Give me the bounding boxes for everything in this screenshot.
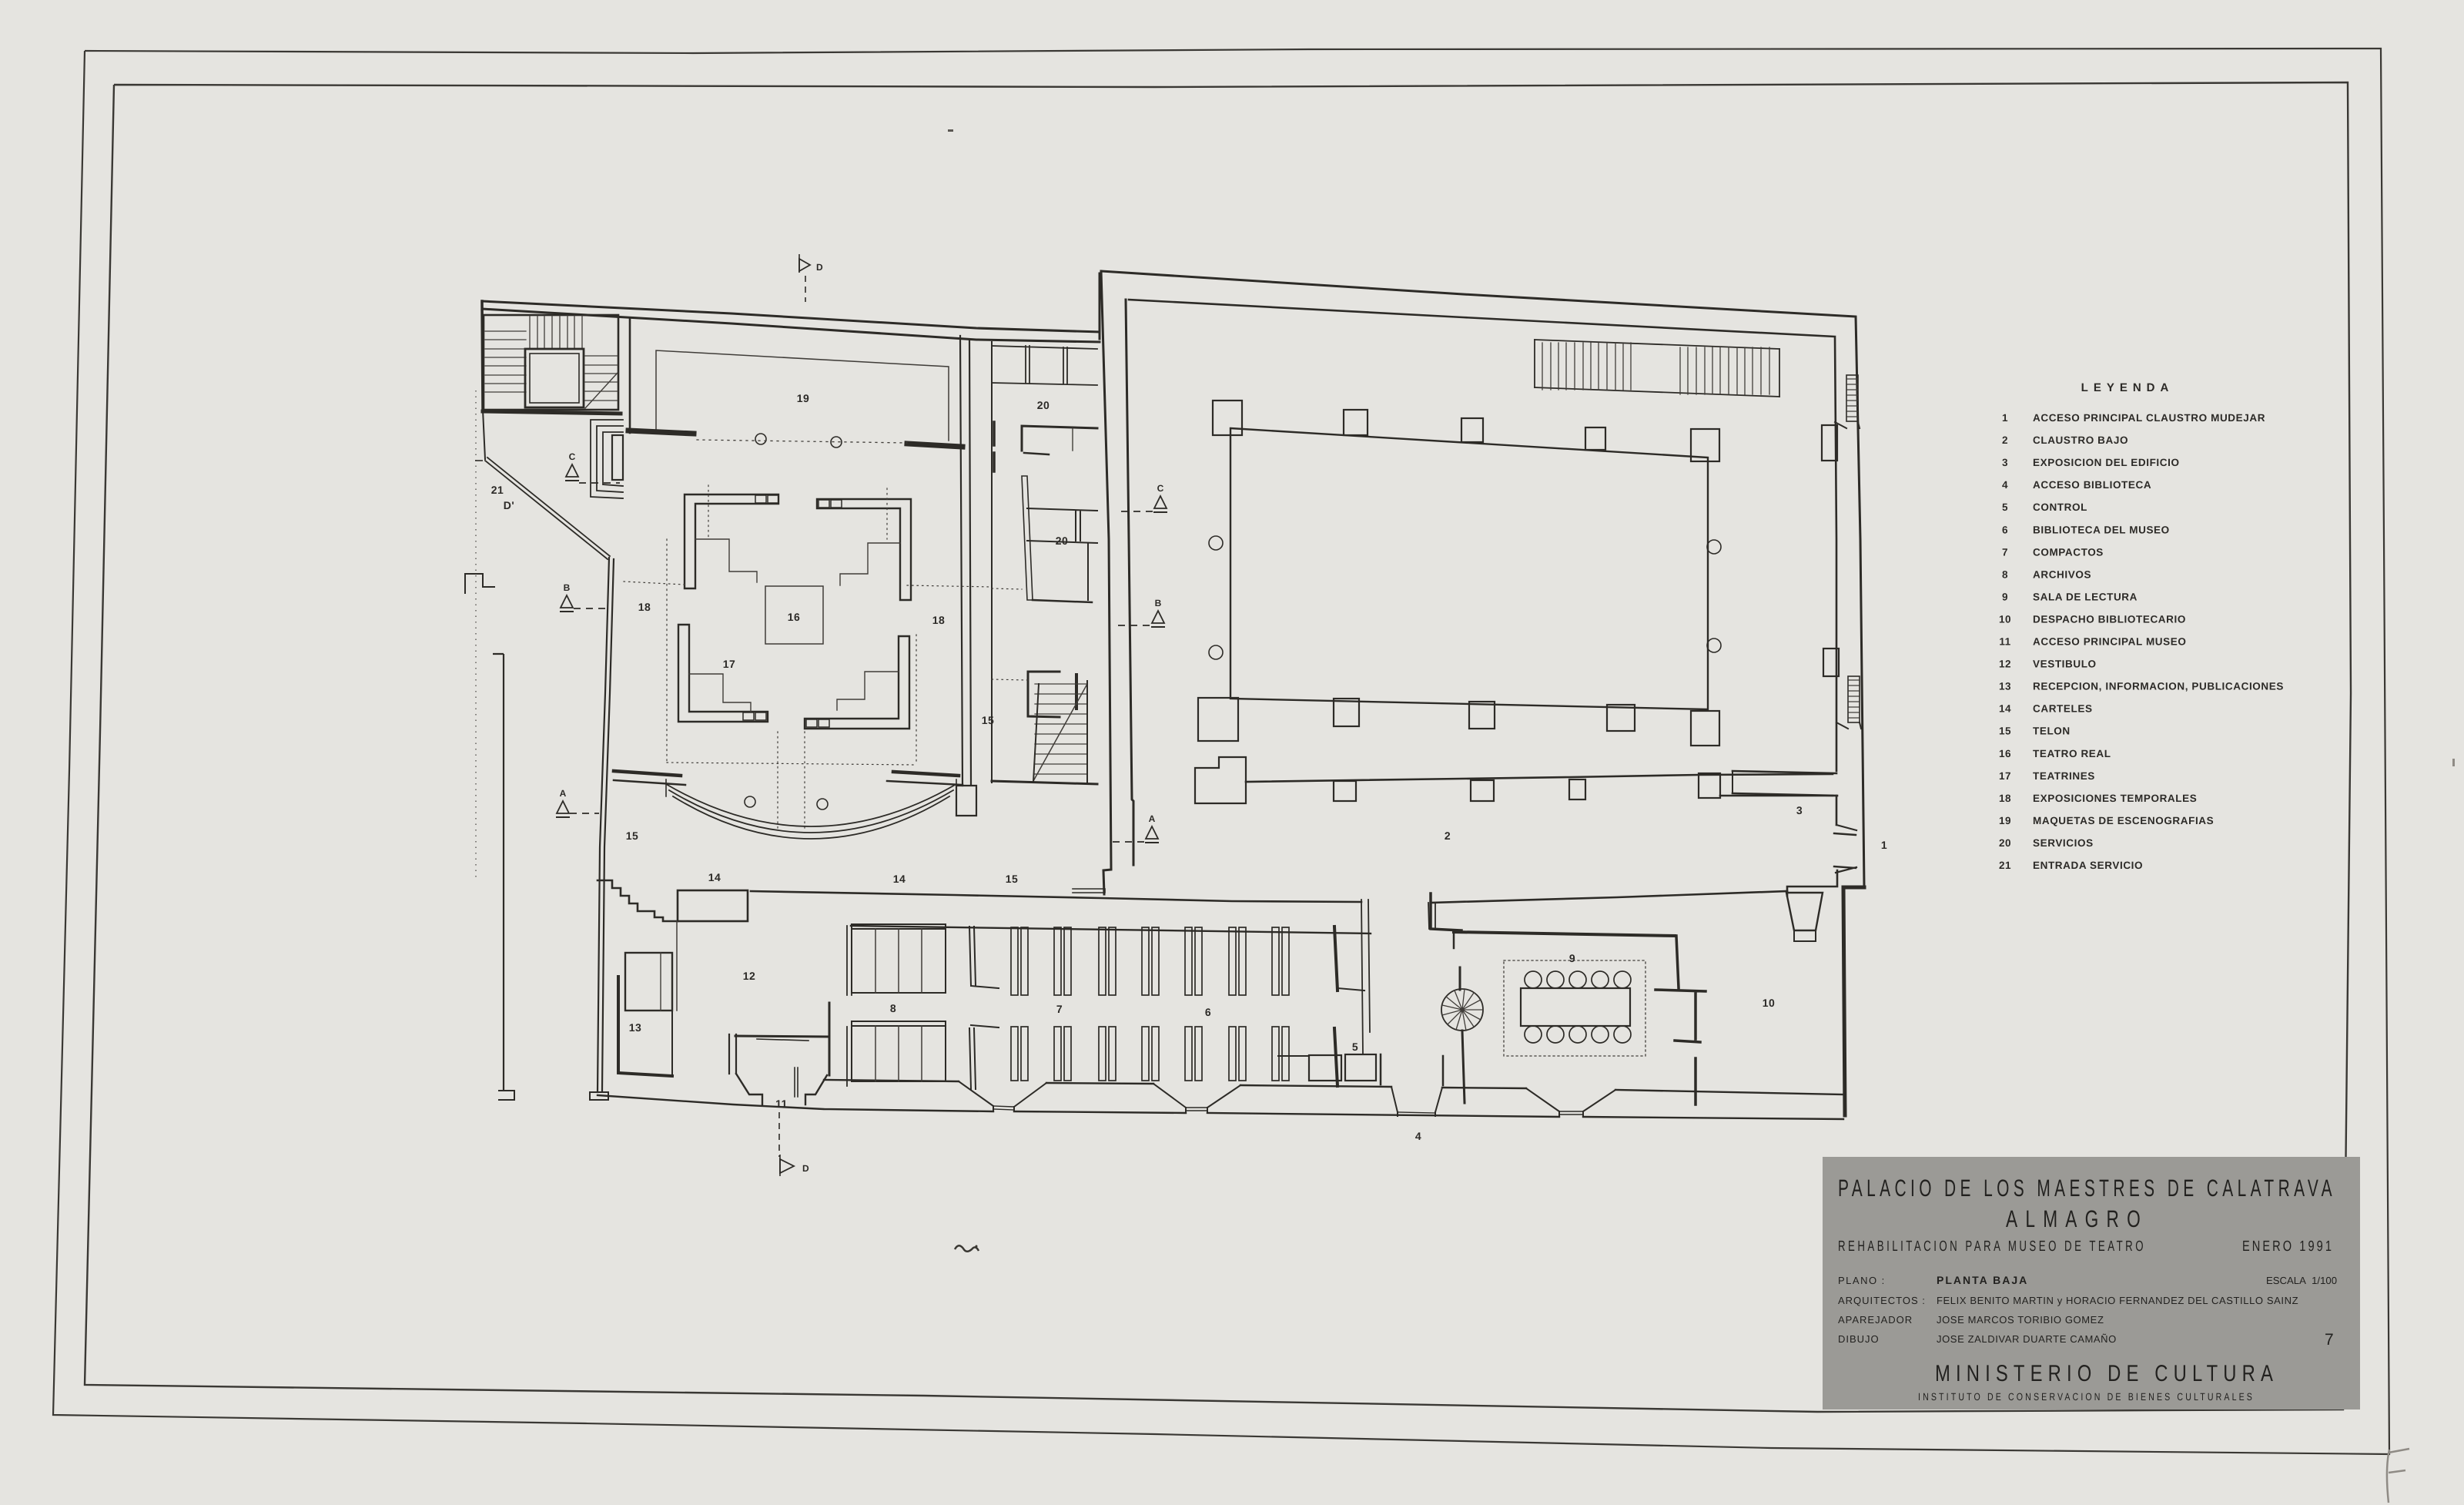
- svg-text:10: 10: [1999, 613, 2011, 625]
- svg-text:DESPACHO BIBLIOTECARIO: DESPACHO BIBLIOTECARIO: [2033, 613, 2186, 625]
- svg-text:LEYENDA: LEYENDA: [2081, 381, 2174, 394]
- svg-text:8: 8: [2002, 568, 2008, 580]
- svg-text:COMPACTOS: COMPACTOS: [2033, 546, 2104, 558]
- svg-text:EXPOSICION DEL EDIFICIO: EXPOSICION DEL EDIFICIO: [2033, 457, 2180, 468]
- svg-text:12: 12: [743, 970, 756, 982]
- svg-text:1: 1: [1881, 839, 1887, 851]
- svg-text:6: 6: [2002, 524, 2008, 535]
- svg-text:11: 11: [775, 1098, 788, 1110]
- svg-text:12: 12: [1999, 659, 2011, 670]
- svg-text:15: 15: [1006, 873, 1019, 885]
- svg-text:A: A: [1149, 813, 1156, 824]
- svg-text:11: 11: [1999, 636, 2010, 648]
- svg-text:PALACIO DE LOS MAESTRES DE: PALACIO DE LOS MAESTRES DE CALATRAVA: [1838, 1175, 2336, 1202]
- svg-text:20: 20: [1056, 535, 1069, 547]
- svg-text:INSTITUTO DE CONSERVACION D: INSTITUTO DE CONSERVACION DE BIENES CULT…: [1918, 1391, 2255, 1403]
- svg-text:16: 16: [1999, 748, 2011, 759]
- svg-text:20: 20: [1037, 399, 1050, 411]
- svg-text:3: 3: [2002, 457, 2008, 468]
- svg-text:ALMAGRO: ALMAGRO: [2006, 1205, 2148, 1232]
- svg-text:5: 5: [2002, 501, 2008, 513]
- svg-text:REHABILITACION PARA MUSEO D: REHABILITACION PARA MUSEO DE TEATRO: [1838, 1239, 2146, 1255]
- svg-text:DIBUJO: DIBUJO: [1838, 1333, 1880, 1345]
- svg-text:ESCALA 1/100: ESCALA 1/100: [2266, 1275, 2337, 1286]
- svg-text:15: 15: [626, 830, 639, 842]
- svg-text:CONTROL: CONTROL: [2033, 501, 2087, 513]
- svg-text:10: 10: [1763, 997, 1776, 1009]
- svg-text:BIBLIOTECA DEL MUSEO: BIBLIOTECA DEL MUSEO: [2033, 524, 2170, 535]
- svg-text:9: 9: [1569, 952, 1575, 964]
- svg-text:15: 15: [982, 714, 995, 726]
- svg-text:D: D: [802, 1163, 809, 1174]
- svg-text:C: C: [1157, 483, 1164, 494]
- svg-text:7: 7: [2325, 1331, 2334, 1349]
- svg-text:MINISTERIO DE CULTURA: MINISTERIO DE CULTURA: [1935, 1361, 2278, 1386]
- svg-text:2: 2: [2002, 434, 2008, 446]
- svg-text:EXPOSICIONES TEMPORALES: EXPOSICIONES TEMPORALES: [2033, 793, 2197, 804]
- svg-text:21: 21: [491, 484, 504, 496]
- svg-text:14: 14: [1999, 703, 2011, 715]
- svg-text:3: 3: [1796, 804, 1803, 816]
- svg-text:ARQUITECTOS :: ARQUITECTOS :: [1838, 1295, 1926, 1306]
- svg-text:PLANO :: PLANO :: [1838, 1275, 1886, 1286]
- svg-text:A: A: [560, 788, 567, 799]
- svg-text:18: 18: [1999, 793, 2011, 804]
- svg-text:VESTIBULO: VESTIBULO: [2033, 659, 2097, 670]
- svg-text:TELON: TELON: [2033, 726, 2071, 737]
- svg-text:CARTELES: CARTELES: [2033, 703, 2093, 715]
- svg-text:15: 15: [1999, 726, 2011, 737]
- svg-text:JOSE ZALDIVAR DUARTE CAMAÑO: JOSE ZALDIVAR DUARTE CAMAÑO: [1937, 1333, 2117, 1345]
- svg-text:17: 17: [1999, 770, 2011, 782]
- svg-text:C: C: [569, 451, 576, 462]
- svg-text:18: 18: [638, 601, 651, 613]
- svg-text:TEATRINES: TEATRINES: [2033, 770, 2095, 782]
- svg-text:D: D: [816, 262, 823, 273]
- svg-text:B: B: [564, 582, 571, 593]
- svg-text:14: 14: [708, 871, 721, 883]
- svg-text:19: 19: [797, 392, 810, 404]
- svg-text:D': D': [504, 499, 514, 511]
- svg-text:APAREJADOR: APAREJADOR: [1838, 1314, 1913, 1326]
- svg-text:19: 19: [1999, 815, 2011, 826]
- svg-text:7: 7: [2002, 546, 2008, 558]
- svg-text:ACCESO PRINCIPAL MUSEO: ACCESO PRINCIPAL MUSEO: [2033, 636, 2186, 648]
- svg-text:6: 6: [1205, 1006, 1211, 1018]
- svg-text:ACCESO PRINCIPAL CLAUSTRO MUDE: ACCESO PRINCIPAL CLAUSTRO MUDEJAR: [2033, 412, 2265, 424]
- svg-text:1: 1: [2002, 412, 2008, 424]
- svg-text:B: B: [1155, 598, 1162, 608]
- svg-text:16: 16: [788, 611, 801, 623]
- svg-text:SALA DE LECTURA: SALA DE LECTURA: [2033, 591, 2138, 602]
- svg-text:MAQUETAS DE ESCENOGRAFIAS: MAQUETAS DE ESCENOGRAFIAS: [2033, 815, 2214, 826]
- svg-text:18: 18: [932, 614, 946, 626]
- svg-text:CLAUSTRO BAJO: CLAUSTRO BAJO: [2033, 434, 2128, 446]
- svg-text:JOSE MARCOS TORIBIO GOMEZ: JOSE MARCOS TORIBIO GOMEZ: [1937, 1314, 2104, 1326]
- svg-text:13: 13: [1999, 681, 2011, 692]
- svg-text:9: 9: [2002, 591, 2008, 602]
- svg-text:20: 20: [1999, 837, 2011, 849]
- svg-text:17: 17: [723, 658, 736, 670]
- svg-text:21: 21: [1999, 860, 2011, 871]
- svg-text:ACCESO BIBLIOTECA: ACCESO BIBLIOTECA: [2033, 479, 2151, 491]
- svg-text:PLANTA BAJA: PLANTA BAJA: [1937, 1274, 2028, 1286]
- svg-text:5: 5: [1352, 1041, 1358, 1053]
- svg-text:13: 13: [629, 1021, 642, 1034]
- svg-text:4: 4: [1415, 1130, 1421, 1142]
- svg-text:TEATRO REAL: TEATRO REAL: [2033, 748, 2111, 759]
- svg-text:SERVICIOS: SERVICIOS: [2033, 837, 2094, 849]
- svg-text:ENERO 1991: ENERO 1991: [2242, 1239, 2334, 1255]
- svg-text:14: 14: [893, 873, 906, 885]
- svg-text:ARCHIVOS: ARCHIVOS: [2033, 568, 2091, 580]
- svg-text:2: 2: [1445, 830, 1451, 842]
- svg-text:4: 4: [2002, 479, 2008, 491]
- svg-text:RECEPCION, INFORMACION, PUBLIC: RECEPCION, INFORMACION, PUBLICACIONES: [2033, 681, 2284, 692]
- svg-text:ENTRADA SERVICIO: ENTRADA SERVICIO: [2033, 860, 2143, 871]
- svg-text:FELIX BENITO MARTIN y HORACI: FELIX BENITO MARTIN y HORACIO FERNANDEZ …: [1937, 1295, 2298, 1306]
- svg-text:7: 7: [1056, 1003, 1063, 1015]
- svg-text:8: 8: [890, 1002, 896, 1014]
